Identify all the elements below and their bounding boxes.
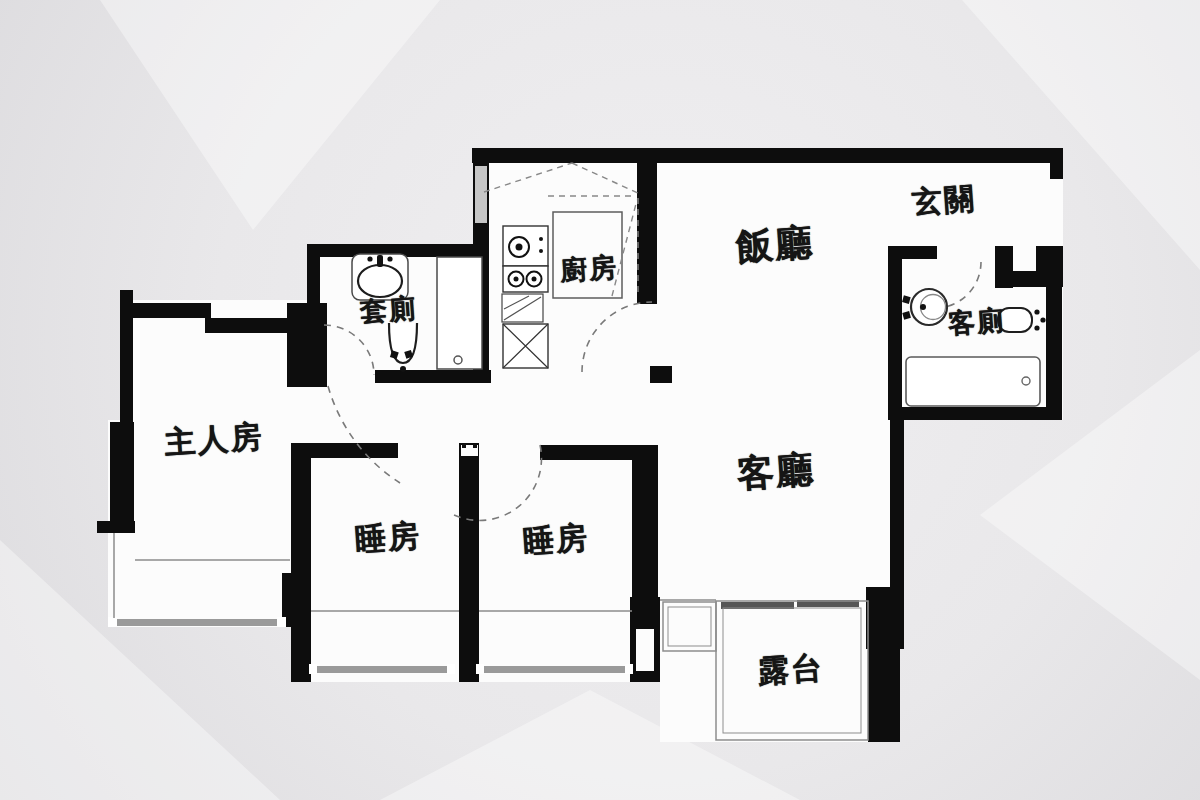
room-label-ensuite-bathroom: 套廁 — [359, 290, 419, 330]
room-label-kitchen: 廚房 — [559, 249, 619, 289]
room-label-dining: 飯廳 — [734, 217, 815, 272]
shower-icon — [437, 257, 482, 369]
master-bay-window — [116, 619, 278, 626]
room-label-living-room: 客廳 — [735, 444, 816, 499]
floor-plan-drawing — [0, 0, 1200, 800]
bedroom1-window — [316, 666, 448, 673]
room-label-bedroom-1: 睡房 — [354, 515, 423, 562]
bedroom2-window — [483, 666, 626, 673]
room-label-balcony: 露台 — [757, 647, 826, 694]
room-label-bedroom-2: 睡房 — [522, 517, 591, 564]
cooktop-icon — [503, 226, 548, 292]
bathtub-icon — [906, 357, 1040, 406]
kitchen-cabinet-icon — [502, 294, 548, 368]
floor-plan-canvas: 飯廳 玄關 廚房 套廁 客廁 主人房 睡房 睡房 客廳 露台 — [0, 0, 1200, 800]
room-label-master-bedroom: 主人房 — [163, 416, 265, 465]
room-label-foyer: 玄關 — [911, 178, 978, 223]
room-label-guest-bathroom: 客廁 — [947, 302, 1007, 342]
kitchen-window — [475, 166, 487, 223]
